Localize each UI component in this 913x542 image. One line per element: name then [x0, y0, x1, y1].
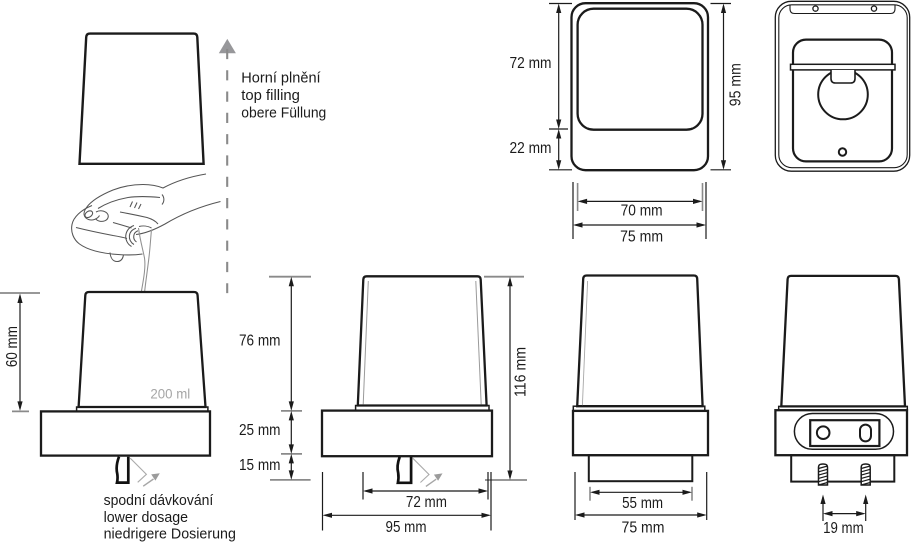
svg-text:76 mm: 76 mm: [239, 333, 281, 350]
svg-text:75 mm: 75 mm: [620, 229, 663, 246]
svg-text:top filling: top filling: [241, 88, 300, 104]
svg-text:lower dosage: lower dosage: [104, 510, 188, 526]
svg-text:15 mm: 15 mm: [239, 457, 281, 474]
svg-text:95 mm: 95 mm: [727, 63, 744, 106]
svg-text:75 mm: 75 mm: [622, 520, 665, 537]
svg-text:obere Füllung: obere Füllung: [241, 105, 326, 121]
svg-text:spodní dávkování: spodní dávkování: [104, 493, 215, 509]
svg-text:22 mm: 22 mm: [510, 140, 552, 157]
svg-text:95 mm: 95 mm: [386, 519, 427, 536]
svg-text:55 mm: 55 mm: [622, 495, 663, 512]
svg-text:Horní plnění: Horní plnění: [241, 71, 321, 87]
svg-text:60 mm: 60 mm: [4, 326, 21, 367]
svg-text:116 mm: 116 mm: [512, 347, 529, 397]
svg-text:niedrigere Dosierung: niedrigere Dosierung: [104, 527, 236, 542]
svg-text:72 mm: 72 mm: [510, 55, 552, 72]
svg-text:72 mm: 72 mm: [406, 494, 447, 511]
svg-text:19 mm: 19 mm: [823, 520, 864, 537]
svg-text:70 mm: 70 mm: [621, 203, 663, 220]
svg-text:200 ml: 200 ml: [150, 385, 190, 401]
svg-text:25 mm: 25 mm: [239, 422, 281, 439]
